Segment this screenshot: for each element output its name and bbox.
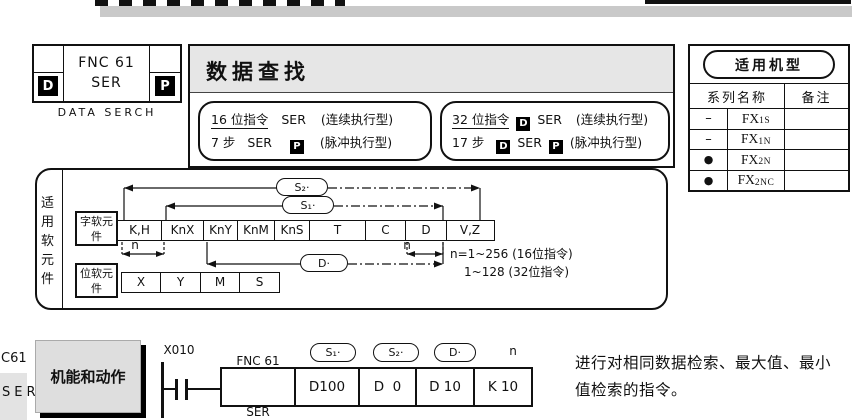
note-cell xyxy=(785,150,848,170)
divider xyxy=(149,46,150,101)
series-header: 系列名称 xyxy=(690,84,785,108)
d-badge: D xyxy=(516,117,530,131)
series-name: FX2NC xyxy=(728,171,785,191)
function-heading-box: 机能和动作 xyxy=(35,340,141,413)
device-cell: KnY xyxy=(203,220,239,241)
instr-line1: FNC 61 xyxy=(236,353,279,370)
type32-line1: 32 位指令 D SER (连续执行型) xyxy=(452,108,658,131)
mnemonic: SER xyxy=(517,135,542,150)
p-instruction-badge: P xyxy=(155,76,175,96)
word-device-row: K,H KnX KnY KnM KnS T C D V,Z xyxy=(118,220,495,241)
s1-operand-oval: S₁· xyxy=(282,196,334,214)
s2-operand-oval: S₂· xyxy=(276,178,328,196)
mnemonic: SER xyxy=(537,112,562,127)
models-title-oval: 适用机型 xyxy=(703,50,835,79)
series-name: FX1S xyxy=(728,109,785,129)
side-label-divider xyxy=(62,170,63,308)
note-cell xyxy=(785,130,848,150)
steps-label: 17 步 xyxy=(452,135,484,150)
word-device-label: 字软元件 xyxy=(75,211,118,246)
function-description: 进行对相同数据检索、最大值、最小值检索的指令。 xyxy=(575,350,837,404)
ladder-wire xyxy=(162,388,176,390)
mnemonic: SER xyxy=(281,112,306,127)
type32-line2: 17 步 D SER P (脉冲执行型) xyxy=(452,131,658,154)
p-badge: P xyxy=(549,140,563,154)
device-cell: M xyxy=(200,272,241,293)
table-row: ● FX2NC xyxy=(690,171,848,191)
d-operand-oval: D· xyxy=(300,254,348,272)
exec-type: (连续执行型) xyxy=(576,112,648,127)
operand-s1-cell: D100 xyxy=(294,367,360,407)
divider xyxy=(150,72,180,73)
applicable-models-table: 适用机型 系列名称 备注 – FX1S – FX1N ● FX2N xyxy=(688,44,850,192)
pulse-type: (脉冲执行型) xyxy=(320,135,392,150)
instruction-caption: DATA SERCH xyxy=(32,106,182,119)
type-box-16bit: 16 位指令 SER (连续执行型) 7 步 SER P (脉冲执行型) xyxy=(198,101,432,161)
device-cell: T xyxy=(309,220,366,241)
device-cell: S xyxy=(239,272,280,293)
exec-type: (连续执行型) xyxy=(321,112,393,127)
p-badge: P xyxy=(290,140,304,154)
operand-n-cell: K 10 xyxy=(473,367,533,407)
device-cell: C xyxy=(365,220,407,241)
s1-ladder-oval: S₁· xyxy=(310,343,356,362)
ladder-instruction-row: FNC 61 SER D100 D 0 D 10 K 10 xyxy=(222,367,533,407)
note-cell xyxy=(785,109,848,129)
bit-device-label: 位软元件 xyxy=(75,263,118,298)
d-instruction-badge: D xyxy=(38,76,58,96)
ladder-power-rail xyxy=(161,362,164,418)
support-mark: ● xyxy=(690,171,728,191)
d-badge: D xyxy=(496,140,510,154)
table-row: – FX1S xyxy=(690,109,848,130)
instruction-header-box: D P FNC 61 SER xyxy=(32,44,182,103)
n-ladder-label: n xyxy=(498,344,528,358)
ladder-wire xyxy=(188,388,222,390)
type-box-32bit: 32 位指令 D SER (连续执行型) 17 步 D SER P (脉冲执行型… xyxy=(440,101,670,161)
s2-ladder-oval: S₂· xyxy=(373,343,419,362)
margin-label-fnc: C61 xyxy=(1,351,27,366)
mnemonic: SER xyxy=(247,135,272,150)
instruction-cell: FNC 61 SER xyxy=(220,367,296,407)
page-title: 数据查找 xyxy=(206,56,310,86)
instr-32-label: 32 位指令 xyxy=(452,112,509,129)
support-mark: – xyxy=(690,130,728,150)
table-row: – FX1N xyxy=(690,130,848,151)
side-label-applicable-devices: 适用软元件 xyxy=(40,194,55,289)
support-mark: ● xyxy=(690,150,728,170)
device-cell: KnS xyxy=(274,220,311,241)
models-title-cell: 适用机型 xyxy=(690,46,848,84)
instr-16-label: 16 位指令 xyxy=(211,112,268,129)
device-cell: KnX xyxy=(161,220,204,241)
fnc-mnemonic: SER xyxy=(64,73,149,93)
pulse-type: (脉冲执行型) xyxy=(570,135,642,150)
n-range-line2: 1~128 (32位指令) xyxy=(464,263,569,280)
note-header: 备注 xyxy=(785,84,848,108)
d-ladder-oval: D· xyxy=(434,343,476,362)
type16-line2: 7 步 SER P (脉冲执行型) xyxy=(211,131,419,154)
margin-label-ser: SER xyxy=(2,385,40,400)
device-cell: KnM xyxy=(237,220,275,241)
title-strip: 数据查找 xyxy=(190,46,673,93)
manual-page: D P FNC 61 SER DATA SERCH 数据查找 16 位指令 SE… xyxy=(0,0,852,420)
divider xyxy=(34,72,63,73)
operand-s2-cell: D 0 xyxy=(358,367,417,407)
ladder-contact-label: X010 xyxy=(150,343,208,357)
type16-line1: 16 位指令 SER (连续执行型) xyxy=(211,108,419,131)
top-right-rule xyxy=(645,0,851,4)
title-section: 数据查找 16 位指令 SER (连续执行型) 7 步 SER P (脉冲执行型… xyxy=(188,44,675,168)
series-name: FX2N xyxy=(728,150,785,170)
fnc-number: FNC 61 xyxy=(64,53,149,73)
instr-line2: SER xyxy=(236,404,279,420)
support-mark: – xyxy=(690,109,728,129)
contact-bar xyxy=(175,379,178,400)
device-cell: D xyxy=(405,220,447,241)
device-cell: K,H xyxy=(117,220,163,241)
device-cell: Y xyxy=(160,272,201,293)
n-range-line1: n=1~256 (16位指令) xyxy=(450,245,573,262)
bit-device-row: X Y M S xyxy=(122,272,280,293)
operand-d-cell: D 10 xyxy=(415,367,475,407)
models-header-row: 系列名称 备注 xyxy=(690,84,848,109)
top-gray-bar xyxy=(100,6,852,17)
note-cell xyxy=(785,171,848,191)
device-cell: V,Z xyxy=(446,220,495,241)
series-name: FX1N xyxy=(728,130,785,150)
device-cell: X xyxy=(121,272,162,293)
table-row: ● FX2N xyxy=(690,150,848,171)
steps-label: 7 步 xyxy=(211,135,235,150)
